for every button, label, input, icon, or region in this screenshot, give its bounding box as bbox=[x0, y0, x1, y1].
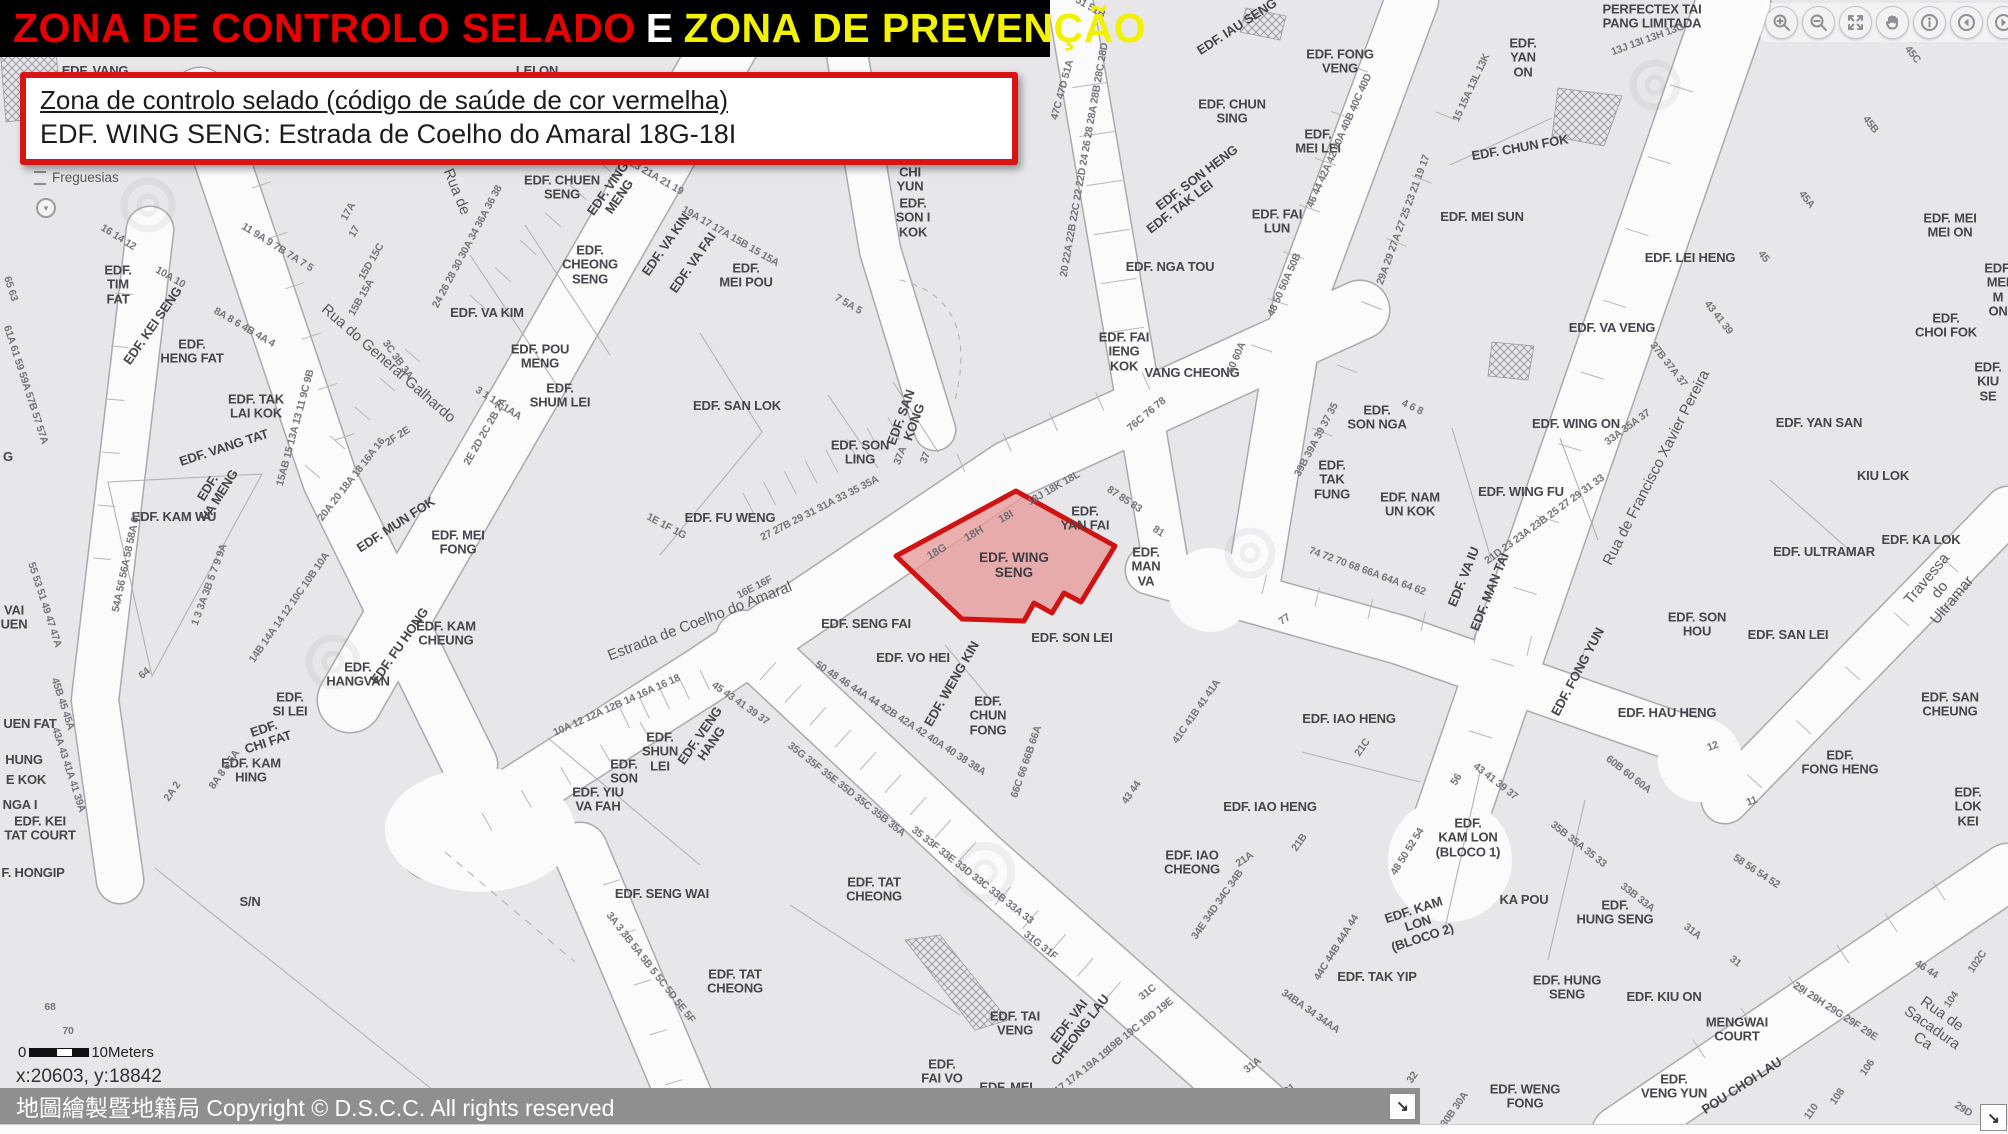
building-label: EDF. FU HONG bbox=[369, 605, 432, 686]
parcel-number: 60 60A bbox=[1225, 341, 1249, 376]
building-label: EDF. SON I KOK bbox=[896, 197, 930, 240]
full-extent-icon bbox=[1846, 13, 1865, 32]
building-label: EDF. TAK FUNG bbox=[1314, 459, 1350, 502]
building-label: EDF. SON NGA bbox=[1347, 404, 1406, 433]
building-label: EDF. FAI IENG KOK bbox=[1099, 331, 1149, 374]
parcel-number: 31A bbox=[1242, 1056, 1264, 1077]
building-label: EDF. KAM LON (BLOCO 1) bbox=[1436, 817, 1501, 860]
parcel-number: 45B bbox=[1860, 114, 1881, 136]
building-label: EDF. MEI SUN bbox=[1440, 210, 1524, 224]
street-label: Rua de Sacadura Ca bbox=[1887, 986, 1978, 1070]
statusbar-resize-icon[interactable]: ↘ bbox=[1389, 1093, 1416, 1120]
parcel-number: 37B 37A 37 bbox=[1647, 340, 1689, 389]
building-label: EDF. CHUN FONG bbox=[970, 695, 1007, 738]
parcel-number: 29I 29H 29G 29F 29E bbox=[1791, 980, 1880, 1043]
parcel-number: 16 14 12 bbox=[98, 223, 137, 254]
building-label: EDF. LEI HENG bbox=[1645, 251, 1736, 265]
building-label: EDF. WENG FONG bbox=[1490, 1083, 1560, 1112]
building-label: EDF. SAN LEI bbox=[1748, 628, 1829, 642]
street-label: Travessa do Ultramar bbox=[1899, 548, 1981, 632]
parcel-number: 29A 29 27A 27 25 23 21 19 17 bbox=[1375, 154, 1433, 287]
building-label: EDF. VAI CHEONG LAU bbox=[1037, 984, 1112, 1069]
building-label: EDF. VANG TAT bbox=[178, 427, 271, 469]
parcel-number: 31G 31F bbox=[1021, 929, 1059, 962]
parcel-number: 19A 17 17A 15B 15 15A bbox=[679, 204, 780, 269]
parcel-number: 48 50 50A 50B bbox=[1266, 252, 1304, 319]
parcel-number: 35B 35A 35 33 bbox=[1548, 820, 1608, 871]
building-label: EDF. VA KIN bbox=[639, 211, 692, 278]
parcel-number: 39B 39A 39 37 35 bbox=[1293, 401, 1342, 479]
parcel-number: 55 53 51 49 47 47A bbox=[25, 561, 63, 649]
building-label: EDF. VO HEI bbox=[876, 651, 950, 665]
parcel-number: 31 bbox=[1727, 954, 1743, 970]
copyright-status-bar: 地圖繪製暨地籍局 Copyright © D.S.C.C. All rights… bbox=[0, 1088, 1420, 1124]
map-toolbar bbox=[1760, 3, 2008, 42]
building-label: EDF. CHUN FOK bbox=[1471, 132, 1570, 163]
parcel-number: 44C 44B 44A 44 bbox=[1312, 913, 1362, 983]
parcel-number: 43A 43 41A 41 39A bbox=[49, 726, 87, 814]
copyright-text: 地圖繪製暨地籍局 Copyright © D.S.C.C. All rights… bbox=[16, 1089, 614, 1123]
scale-distance-label: 10Meters bbox=[91, 1044, 154, 1061]
building-label: EDF. POU MENG bbox=[511, 343, 569, 372]
building-label: PERFECTEX TAI PANG LIMITADA bbox=[1602, 3, 1701, 32]
info-box-heading: Zona de controlo selado (código de saúde… bbox=[40, 85, 998, 116]
building-label: EDF. VA MENG bbox=[187, 460, 242, 524]
building-label: EDF. LOK KEI bbox=[1948, 786, 1988, 829]
building-label: EDF. VA FAI bbox=[667, 230, 719, 296]
parcel-number: 56 bbox=[1449, 772, 1465, 788]
arrow-right-icon bbox=[1994, 13, 2008, 32]
parcel-number: 2F 2E bbox=[384, 425, 413, 449]
building-label: EDF. FAI LUN bbox=[1252, 208, 1302, 237]
building-label: EDF. HAU HENG bbox=[1618, 706, 1717, 720]
building-label: EDF. SON HENG bbox=[1153, 143, 1240, 214]
building-label: EDF. HUNG SENG bbox=[1533, 974, 1601, 1003]
parcel-number: 20A 20 18A 18 16A 16 bbox=[316, 436, 388, 524]
parcel-number: 110 bbox=[1803, 1102, 1822, 1122]
building-label: F. HONGIP bbox=[1, 866, 64, 880]
parcel-number: 1E 1F 1G bbox=[644, 512, 688, 543]
building-label: EDF. KAM LON (BLOCO 2) bbox=[1381, 894, 1456, 955]
scale-zero: 0 bbox=[18, 1044, 26, 1061]
parcel-number: 45B 45 45A bbox=[48, 677, 76, 732]
parcel-number: 15B 15A bbox=[347, 278, 377, 318]
building-label: VANG CHEONG bbox=[1144, 366, 1239, 380]
parcel-number: 33B 33A bbox=[1618, 881, 1657, 915]
building-label: S/N bbox=[239, 895, 260, 909]
building-label: EDF. SON LEI bbox=[1031, 631, 1112, 645]
parcel-number: 104 bbox=[1942, 990, 1961, 1010]
parcel-number: 106 bbox=[1858, 1058, 1877, 1078]
building-label: EDF. VENG YUN bbox=[1641, 1073, 1707, 1102]
parcel-number: 41C 41B 41 41A bbox=[1171, 678, 1224, 746]
building-label: EDF. FONG HENG bbox=[1802, 749, 1879, 778]
parcel-number: 64 bbox=[137, 666, 153, 682]
pan-button[interactable] bbox=[1876, 6, 1909, 39]
parcel-number: 17 bbox=[347, 224, 363, 240]
parcel-number: 16E 16F bbox=[735, 574, 774, 602]
map-labels-layer: EDF. VANGLEI ONEDF. IAU SENGEDF. FONG VE… bbox=[0, 0, 2008, 1134]
info-icon bbox=[1920, 13, 1939, 32]
sealed-zone-door-number: 18G bbox=[925, 542, 949, 563]
parcel-number: 33A 35A 37 bbox=[1603, 408, 1653, 449]
parcel-number: 34BA 34 34AA bbox=[1279, 988, 1342, 1037]
scale-bar: 0 10Meters bbox=[18, 1044, 154, 1061]
building-label: EDF. FU WENG bbox=[685, 511, 776, 525]
building-label: EDF. WENG KIN bbox=[922, 639, 982, 729]
parcel-number: 108 bbox=[1828, 1087, 1847, 1107]
parcel-number: 10A 10 bbox=[153, 265, 187, 291]
parcel-number: 4 6 8 bbox=[1399, 398, 1424, 418]
banner-conjunction: E bbox=[636, 5, 684, 52]
parcel-number: 21D 23 23A 23B 25 27 29 31 33 bbox=[1483, 473, 1607, 568]
building-label: EDF. VA VENG bbox=[1569, 321, 1655, 335]
building-label: EDF. SHUN LEI bbox=[642, 731, 678, 774]
building-label: E KOK bbox=[6, 773, 46, 787]
building-label: EDF. TAT CHEONG bbox=[846, 876, 902, 905]
parcel-number: 70 bbox=[62, 1026, 73, 1038]
building-label: KA POU bbox=[1500, 893, 1549, 907]
building-label: EDF. WING FU bbox=[1478, 485, 1564, 499]
parcel-number: 76C 76 78 bbox=[1125, 396, 1168, 435]
building-label: EDF. HANGVAN bbox=[326, 661, 389, 690]
parcel-number: 20 22A 22B 22C 22 22D 24 26 28 28A 28B 2… bbox=[1059, 42, 1112, 278]
building-label: EDF. ULTRAMAR bbox=[1773, 545, 1875, 559]
building-label: EDF. TAT CHEONG bbox=[707, 968, 763, 997]
building-label: EDF. MEI POU bbox=[719, 262, 773, 291]
building-label: EDF. FAI VO bbox=[921, 1058, 962, 1087]
parcel-number: 77 bbox=[1277, 612, 1293, 628]
building-label: EDF. YAN ON bbox=[1509, 37, 1536, 80]
building-label: EDF. MAN VA bbox=[1131, 546, 1160, 589]
layer-label: Freguesias bbox=[52, 170, 119, 185]
parcel-number: 45A bbox=[1796, 189, 1817, 211]
parcel-number: 74 72 70 68 66A 64A 64 62 bbox=[1307, 545, 1427, 598]
building-label: HUNG bbox=[5, 753, 42, 767]
building-label: EDF. KEI SENG bbox=[121, 285, 185, 368]
layer-lines-icon bbox=[34, 171, 46, 185]
parcel-number: 2E 2D 2C 2B 2A bbox=[462, 396, 510, 467]
parcel-number: 87 85 83 bbox=[1104, 484, 1143, 515]
parcel-number: 48 50 52 54 bbox=[1389, 826, 1427, 877]
building-label: EDF. NAM UN KOK bbox=[1380, 491, 1440, 520]
building-label: EDF. MAN TAI bbox=[1468, 551, 1512, 633]
parcel-number: 68 bbox=[44, 1002, 55, 1014]
building-label: EDF. IAO HENG bbox=[1223, 800, 1316, 814]
bottom-strip bbox=[0, 1124, 2008, 1134]
building-label: EDF. NGA TOU bbox=[1126, 260, 1215, 274]
street-label: Estrada de Coelho do Amaral bbox=[606, 579, 795, 665]
parcel-number: 35 33F 33E 33D 33C 33B 33A 33 bbox=[909, 825, 1035, 927]
building-label: EDF. TAK YIP bbox=[1337, 970, 1416, 984]
parcel-number: 81 bbox=[1150, 524, 1166, 540]
parcel-number: 31C bbox=[1137, 983, 1159, 1004]
parcel-number: 35G 35F 35E 35D 35C 35B 35A bbox=[785, 741, 907, 840]
parcel-number: 21A bbox=[1234, 850, 1256, 870]
building-label: EDF. KAM CHEUNG bbox=[416, 620, 476, 649]
building-label: POU CHOI LAU bbox=[1699, 1055, 1784, 1117]
building-label: EDF. MEI M ON bbox=[1984, 261, 2008, 318]
zoom-out-button[interactable] bbox=[1802, 6, 1835, 39]
building-label: EDF. TIM FAT bbox=[104, 264, 131, 307]
next-extent-button[interactable] bbox=[1987, 6, 2008, 39]
parcel-number: 66C 66 66B 66A bbox=[1009, 724, 1044, 799]
building-label: VAI UEN bbox=[1, 604, 28, 633]
parcel-number: 10A 12 12A 12B 14 16A 16 18 bbox=[552, 673, 682, 740]
building-label: KIU LOK bbox=[1857, 469, 1909, 483]
building-label: EDF. SAN CHEUNG bbox=[1921, 691, 1979, 720]
building-label: EDF. CHUEN SENG bbox=[524, 174, 600, 203]
parcel-number: 43 41 39 bbox=[1701, 299, 1734, 337]
parcel-number: 60B 60 60A bbox=[1603, 754, 1653, 796]
building-label: EDF. KIU SE bbox=[1974, 361, 2001, 404]
building-label: EDF. CHOI FOK bbox=[1915, 312, 1977, 341]
title-banner: ZONA DE CONTROLO SELADO E ZONA DE PREVEN… bbox=[0, 0, 1050, 57]
building-label: G bbox=[3, 450, 13, 464]
parcel-number: 47C 47D 51A bbox=[1049, 59, 1076, 121]
parcel-number: 15AB 15 13A 13 11 9C 9B bbox=[275, 369, 317, 488]
building-label: EDF. KA LOK bbox=[1882, 533, 1961, 547]
building-label: EDF. MUN FOK bbox=[354, 494, 437, 555]
info-box-address: EDF. WING SENG: Estrada de Coelho do Ama… bbox=[40, 119, 998, 150]
building-label: EDF. FONG VENG bbox=[1306, 48, 1374, 77]
pan-hand-icon bbox=[1883, 13, 1902, 32]
zoom-in-button[interactable] bbox=[1765, 6, 1798, 39]
parcel-number: 50 48 46 44A 44 42B 42A 42 40A 40 38 38A bbox=[813, 659, 988, 778]
parcel-number: 43 44 bbox=[1120, 779, 1144, 806]
parcel-number: 14B 14A 14 12 10C 10B 10A bbox=[247, 551, 332, 666]
building-label: EDF. KIU ON bbox=[1626, 990, 1701, 1004]
building-label: EDF. VA KIM bbox=[450, 306, 524, 320]
parcel-number: 11 bbox=[1745, 795, 1759, 810]
building-label: EDF. SAN KONG bbox=[885, 388, 932, 452]
parcel-number: 12 bbox=[1706, 740, 1721, 755]
building-label: EDF. VA IU bbox=[1446, 545, 1483, 609]
parcel-number: 45 43 41 39 37 bbox=[709, 680, 771, 728]
building-label: EDF. YAN FAI bbox=[1061, 505, 1110, 534]
parcel-number: 3A 3 3B 5A 5B 5 5C 5D 5E 5F bbox=[603, 910, 697, 1025]
sealed-zone-door-number: 18H bbox=[962, 524, 986, 545]
parcel-number: 1 3 3A 3B 5 7 9 9A bbox=[190, 543, 230, 628]
full-extent-button[interactable] bbox=[1839, 6, 1872, 39]
zoom-in-icon bbox=[1772, 13, 1791, 32]
map-application: EDF. VANGLEI ONEDF. IAU SENGEDF. FONG VE… bbox=[0, 0, 2008, 1134]
previous-extent-button[interactable] bbox=[1950, 6, 1983, 39]
building-label: EDF. SENG WAI bbox=[615, 887, 709, 901]
parcel-number: 34E 34D 34C 34B bbox=[1190, 868, 1247, 942]
street-label: Rua de bbox=[439, 166, 472, 217]
parcel-number: 45 bbox=[1755, 249, 1771, 265]
building-label: EDF. SON bbox=[610, 758, 638, 787]
parcel-number: 19B 19C 19D 19E bbox=[1104, 996, 1176, 1056]
building-label: EDF. SAN LOK bbox=[693, 399, 781, 413]
parcel-number: 58 56 54 52 bbox=[1731, 853, 1782, 892]
parcel-number: 27 27B 29 31 31A 33 35 35A bbox=[759, 474, 881, 544]
building-label: EDF. TAK LEI bbox=[1144, 178, 1216, 237]
building-label: EDF. SHUM LEI bbox=[530, 382, 591, 411]
building-label: EDF. IAO HENG bbox=[1302, 712, 1395, 726]
building-label: EDF. KAM HING bbox=[221, 757, 281, 786]
sealed-zone-door-number: 18I bbox=[996, 508, 1015, 526]
parcel-number: 2A 2 bbox=[162, 780, 184, 804]
parcel-number: 46 44 42A 42 40A 40B 40C 40D bbox=[1305, 72, 1375, 210]
parcel-number: 15D 15C bbox=[357, 242, 387, 282]
sealed-zone-label: EDF. WING SENG bbox=[979, 551, 1049, 581]
building-label: EDF. SON LING bbox=[831, 439, 889, 468]
parcel-number: 37A bbox=[892, 445, 910, 467]
parcel-number: 15 15A 13L 13K bbox=[1451, 52, 1493, 124]
street-label: Rua do General Galhardo bbox=[318, 301, 458, 426]
building-label: EDF. CHUN SING bbox=[1198, 98, 1266, 127]
building-label: EDF. IAU SENG bbox=[1195, 0, 1280, 58]
building-label: EDF. VING MENG bbox=[585, 160, 644, 227]
parcel-number: 18J 18K 18L bbox=[1026, 469, 1082, 508]
parcel-number: 32 bbox=[1405, 1070, 1421, 1086]
building-label: EDF. MEI MEI ON bbox=[1923, 212, 1976, 241]
building-label: EDF. WING ON bbox=[1532, 417, 1620, 431]
parcel-number: 21B bbox=[1290, 832, 1310, 854]
building-label: EDF. IAO CHEONG bbox=[1164, 849, 1220, 878]
parcel-number: 3C 3B 3A bbox=[380, 338, 415, 381]
layer-collapse-button[interactable]: ▾ bbox=[36, 198, 56, 218]
building-label: CHI YUN bbox=[897, 166, 924, 195]
parcel-number: 37 bbox=[919, 451, 934, 466]
building-label: EDF. YIU VA FAH bbox=[572, 786, 624, 815]
overview-map-toggle[interactable]: ↘ bbox=[1980, 1104, 2007, 1131]
street-label: Rua de Francisco Xavier Pereira bbox=[1600, 368, 1713, 569]
parcel-number: 46 44 bbox=[1912, 958, 1939, 981]
parcel-number: 11 9A 9 7B 7A 7 5 bbox=[239, 221, 315, 274]
building-label: EDF. KAM WU bbox=[132, 510, 216, 524]
building-label: NGA I bbox=[3, 798, 38, 812]
identify-button[interactable] bbox=[1913, 6, 1946, 39]
parcel-number: 54A 56 56A 58 58A 60 bbox=[111, 511, 144, 613]
parcel-number: 7 5A 5 bbox=[832, 293, 863, 318]
parcel-number: 21C bbox=[1353, 737, 1373, 759]
building-label: EDF. HENG FAT bbox=[160, 338, 223, 367]
building-label: EDF. SENG FAI bbox=[821, 617, 911, 631]
building-label: EDF. MEI FONG bbox=[431, 529, 484, 558]
layer-item-freguesias[interactable]: Freguesias bbox=[34, 170, 129, 185]
arrow-left-icon bbox=[1957, 13, 1976, 32]
parcel-number: 61A 61 59 59A 57B 57 57A bbox=[0, 324, 49, 446]
building-label: EDF. TAK LAI KOK bbox=[228, 393, 284, 422]
scale-bar-graphic bbox=[29, 1048, 89, 1057]
parcel-number: 8A 8 6 4B 4A 4 bbox=[211, 306, 276, 350]
parcel-number: 65 63 bbox=[1, 275, 20, 303]
banner-prevention-zone-text: ZONA DE PREVENÇÃO bbox=[684, 5, 1147, 52]
building-label: EDF. SON HOU bbox=[1668, 611, 1726, 640]
parcel-number: 3 1 1A 1AA bbox=[473, 385, 523, 423]
sealed-zone-info-box: Zona de controlo selado (código de saúde… bbox=[20, 72, 1018, 165]
building-label: EDF. CHI FAT bbox=[239, 715, 294, 757]
building-label: EDF. VENG HANG bbox=[675, 704, 737, 775]
building-label: EDF. YAN SAN bbox=[1776, 416, 1862, 430]
parcel-number: 31A bbox=[1681, 922, 1703, 943]
building-label: EDF. MEI LEI bbox=[1295, 128, 1341, 157]
parcel-number: 8A 8 6 6A bbox=[207, 748, 242, 792]
banner-sealed-zone-text: ZONA DE CONTROLO SELADO bbox=[13, 5, 636, 52]
building-label: EDF. HUNG SENG bbox=[1577, 899, 1654, 928]
building-label: UEN FAT bbox=[3, 717, 56, 731]
building-label: EDF. TAI VENG bbox=[990, 1010, 1040, 1039]
building-label: EDF. SI LEI bbox=[273, 691, 308, 720]
parcel-number: 17A bbox=[339, 201, 358, 223]
building-label: EDF. FONG YUN bbox=[1549, 626, 1607, 719]
zoom-out-icon bbox=[1809, 13, 1828, 32]
building-label: EDF. KEI TAT COURT bbox=[4, 815, 75, 844]
parcel-number: 13J 13I 13H 13G bbox=[1610, 21, 1686, 58]
parcel-number: 43 41 39 37 bbox=[1470, 761, 1519, 803]
parcel-number: 102C bbox=[1966, 949, 1989, 976]
parcel-number: 24 26 28 30 30A 34 36A 36 38 bbox=[431, 184, 506, 311]
building-label: EDF. CHEONG SENG bbox=[562, 244, 618, 287]
building-label: MENGWAI COURT bbox=[1706, 1016, 1768, 1045]
cursor-coordinates: x:20603, y:18842 bbox=[16, 1066, 162, 1088]
parcel-number: 29D bbox=[1952, 1100, 1974, 1120]
parcel-number: 45C bbox=[1902, 44, 1923, 66]
